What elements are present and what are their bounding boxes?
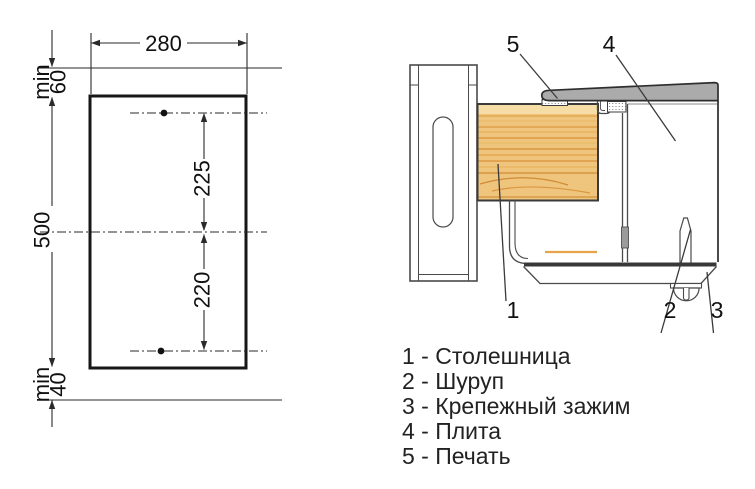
legend-item-2: 2 - Шуруп: [402, 369, 630, 394]
leader-5: [520, 54, 558, 99]
installation-diagram-page: 280 min 60 500 225 220 min 40: [0, 0, 755, 489]
callout-5: 5: [507, 31, 520, 57]
legend: 1 - Столешница 2 - Шуруп 3 - Крепежный з…: [402, 344, 630, 469]
clearance-bottom-value: 40: [46, 372, 71, 396]
wall-tab: [622, 227, 629, 248]
callout-4: 4: [603, 31, 616, 57]
dim-height-label: 500: [30, 212, 55, 249]
countertop-wood: [478, 104, 599, 201]
drawing-canvas: 280 min 60 500 225 220 min 40: [0, 0, 755, 489]
bottom-pan: [524, 267, 717, 284]
legend-item-4: 4 - Плита: [402, 419, 630, 444]
clamp-bracket: [510, 200, 529, 264]
legend-item-5: 5 - Печать: [402, 444, 630, 469]
dim-hole-bottom-label: 220: [190, 272, 215, 309]
section-diagram: 5 4 1 2 3: [410, 31, 723, 333]
tub-wall: [622, 104, 718, 262]
mounting-rail: [410, 65, 477, 281]
seal-strip-right: [608, 102, 627, 113]
hob-plate: [542, 83, 718, 101]
axis-lines: [40, 113, 267, 351]
clearance-top-value: 60: [46, 70, 71, 94]
callout-3: 3: [711, 297, 724, 323]
hole-center-bottom: [158, 348, 165, 355]
dim-width-label: 280: [145, 31, 182, 56]
legend-item-3: 3 - Крепежный зажим: [402, 394, 630, 419]
cutout-diagram: 280 min 60 500 225 220 min 40: [29, 30, 282, 427]
callout-2: 2: [664, 297, 677, 323]
callout-1: 1: [507, 297, 520, 323]
screw: [680, 218, 691, 264]
rail-slot: [433, 117, 453, 227]
dim-hole-top-label: 225: [190, 160, 215, 197]
legend-item-1: 1 - Столешница: [402, 344, 630, 369]
hole-center-top: [161, 110, 168, 117]
